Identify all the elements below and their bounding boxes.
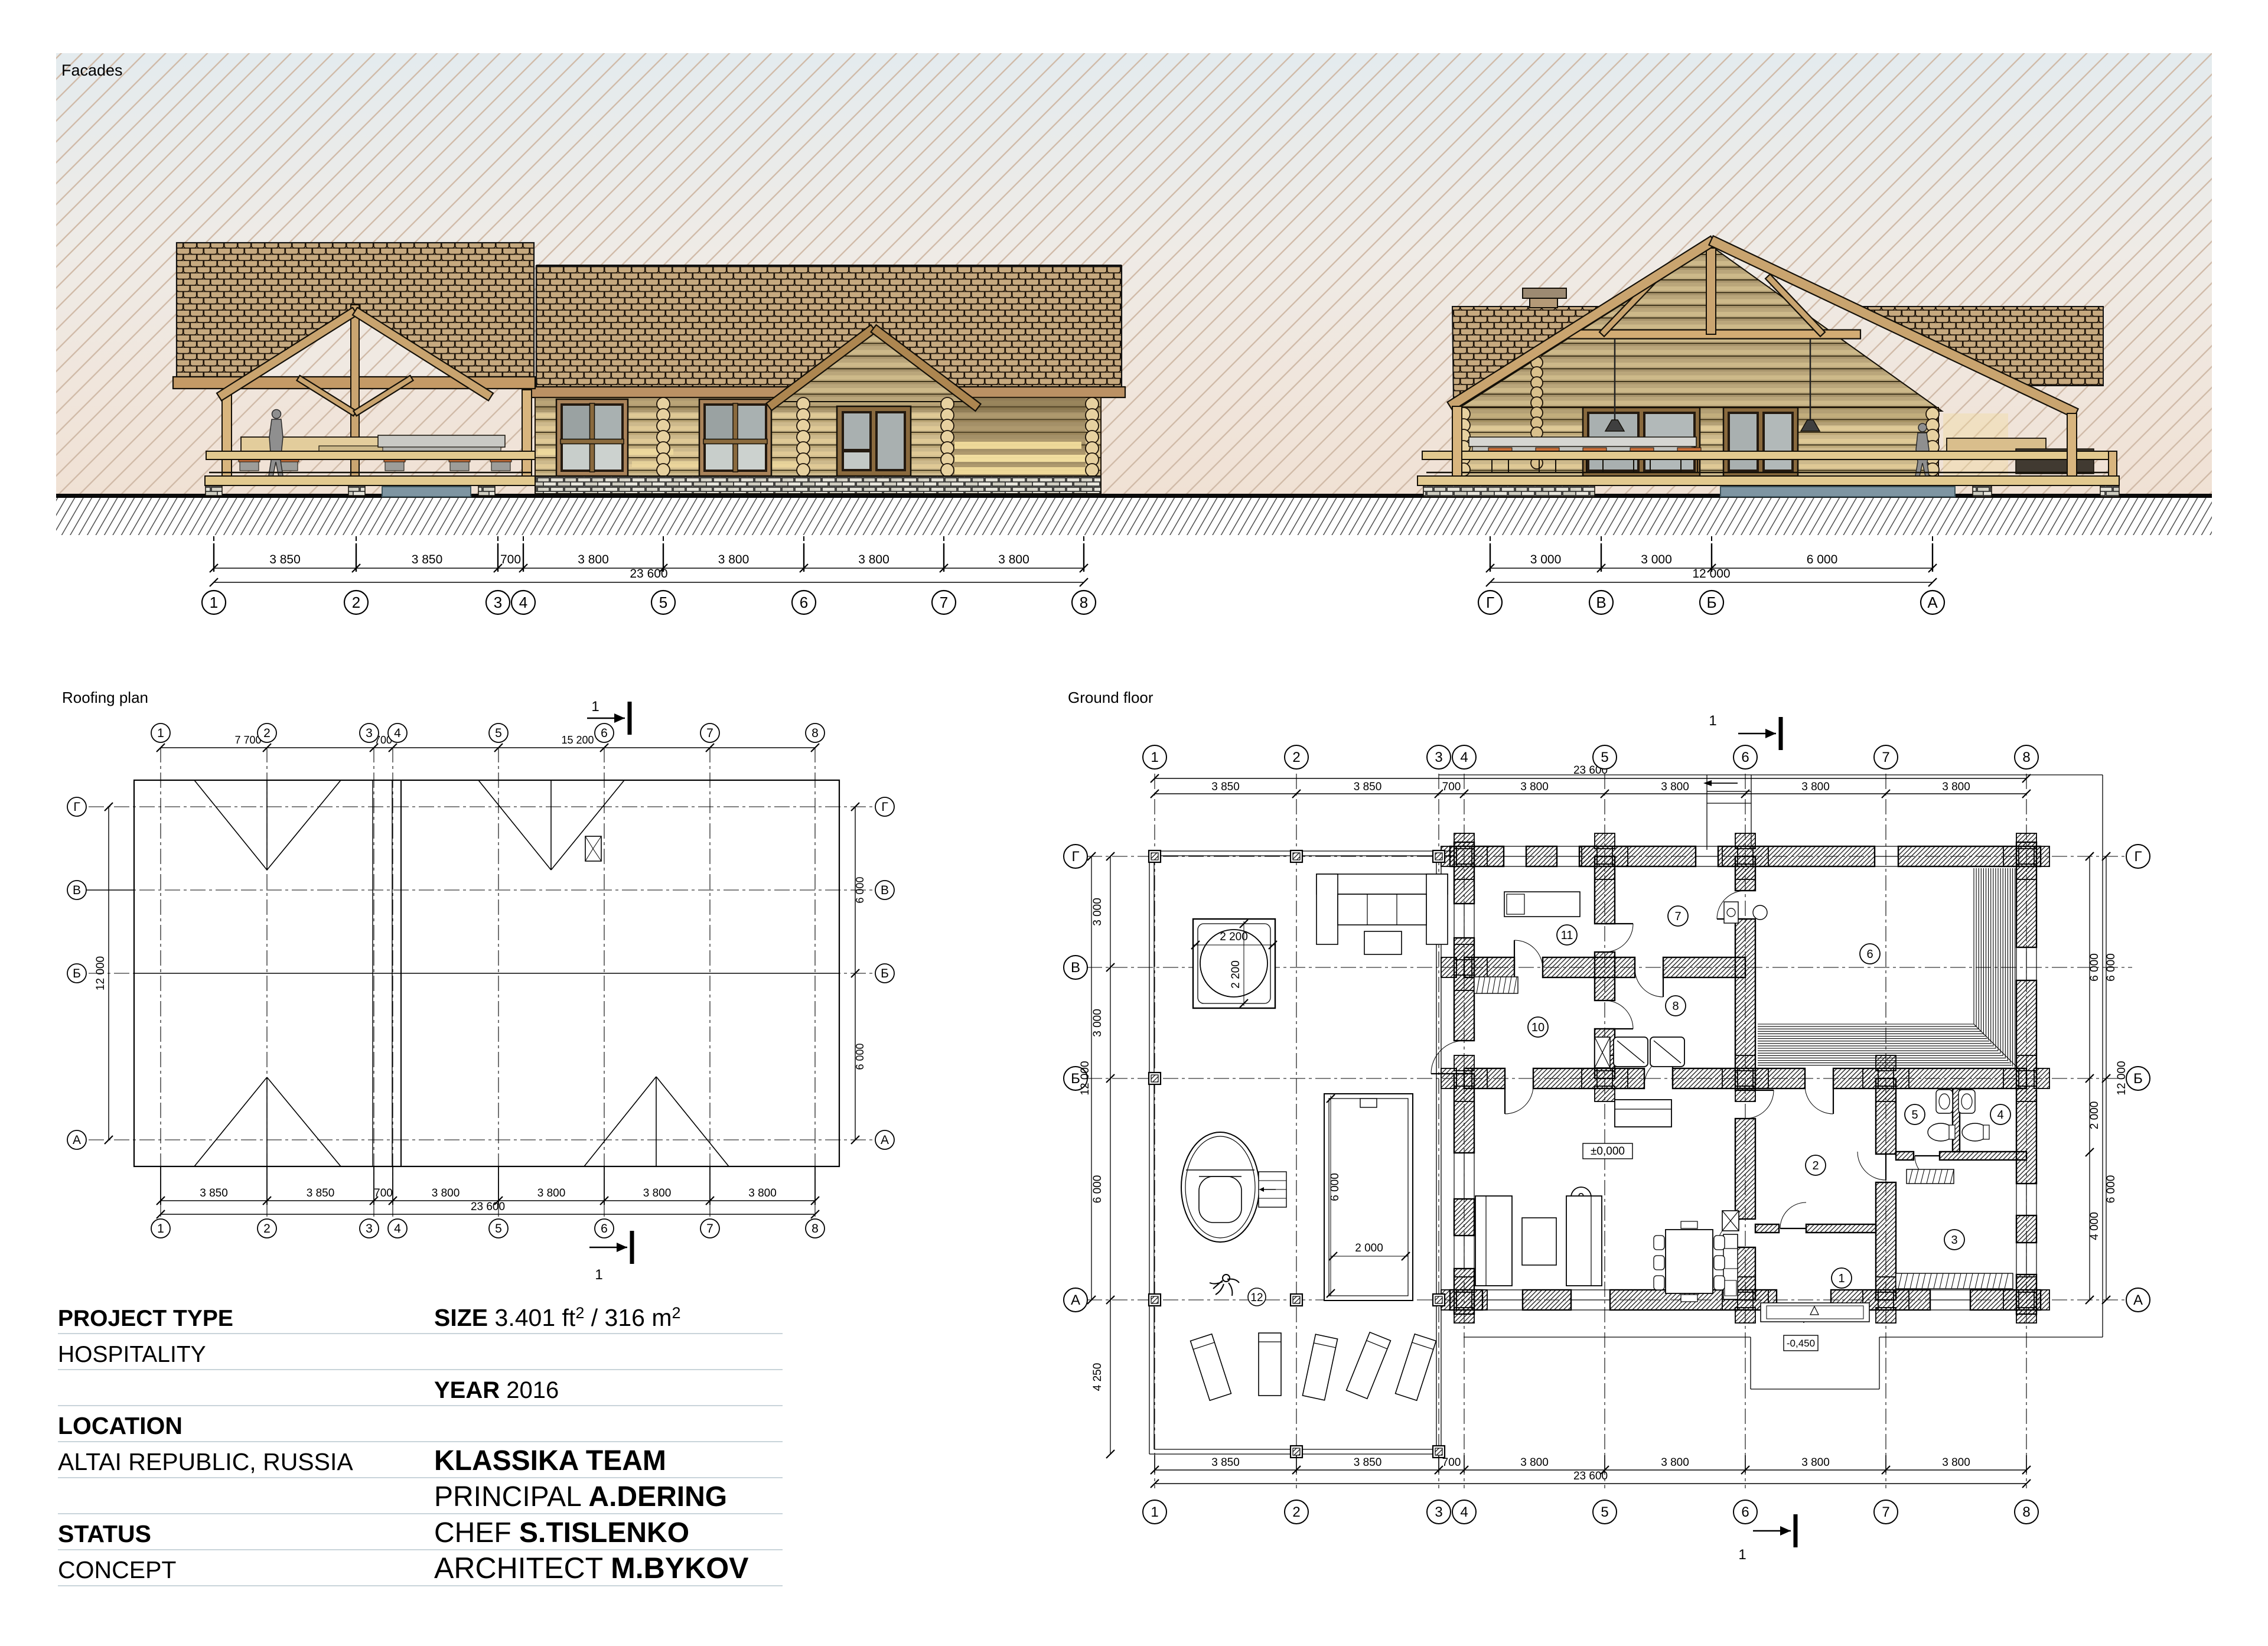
svg-text:LOCATION: LOCATION — [58, 1412, 183, 1439]
svg-text:3: 3 — [366, 726, 373, 740]
svg-text:11: 11 — [1561, 929, 1573, 942]
svg-text:15 200: 15 200 — [561, 734, 594, 746]
svg-text:3 000: 3 000 — [1091, 1009, 1104, 1037]
svg-text:2: 2 — [1292, 1504, 1300, 1520]
svg-text:2 000: 2 000 — [2088, 1101, 2101, 1130]
svg-text:Facades: Facades — [61, 61, 123, 79]
svg-text:7 700: 7 700 — [234, 734, 261, 746]
svg-text:5: 5 — [659, 594, 667, 611]
svg-text:3 800: 3 800 — [432, 1187, 460, 1200]
svg-text:PRINCIPAL A.DERING: PRINCIPAL A.DERING — [434, 1481, 727, 1513]
svg-text:3 000: 3 000 — [1091, 898, 1104, 926]
svg-text:-0,450: -0,450 — [1787, 1338, 1815, 1349]
svg-text:3 850: 3 850 — [412, 553, 443, 566]
svg-text:CHEF S.TISLENKO: CHEF S.TISLENKO — [434, 1517, 689, 1549]
svg-text:3 800: 3 800 — [748, 1187, 777, 1200]
svg-text:В: В — [1071, 960, 1080, 976]
svg-text:1: 1 — [1838, 1272, 1845, 1285]
svg-text:4: 4 — [519, 594, 527, 611]
svg-text:7: 7 — [706, 726, 713, 740]
svg-text:23 600: 23 600 — [1573, 1470, 1608, 1482]
svg-text:7: 7 — [1674, 910, 1681, 923]
svg-text:1: 1 — [1151, 1504, 1158, 1520]
svg-text:Г: Г — [881, 800, 888, 814]
svg-text:7: 7 — [940, 594, 948, 611]
svg-text:HOSPITALITY: HOSPITALITY — [58, 1342, 206, 1367]
svg-text:12 000: 12 000 — [1692, 567, 1730, 581]
svg-text:А: А — [73, 1133, 81, 1147]
svg-text:2: 2 — [263, 1222, 271, 1236]
svg-text:6: 6 — [1866, 948, 1873, 961]
svg-text:3 850: 3 850 — [307, 1187, 335, 1200]
svg-text:STATUS: STATUS — [58, 1520, 151, 1547]
svg-text:4 250: 4 250 — [1091, 1363, 1104, 1391]
svg-text:700: 700 — [374, 1187, 393, 1200]
svg-text:5: 5 — [1911, 1109, 1918, 1122]
svg-text:23 600: 23 600 — [471, 1201, 505, 1213]
svg-text:3 800: 3 800 — [858, 553, 889, 566]
svg-text:12 000: 12 000 — [94, 956, 107, 990]
svg-text:12 000: 12 000 — [1079, 1061, 1091, 1095]
svg-text:3 850: 3 850 — [1211, 781, 1240, 793]
svg-text:А: А — [881, 1133, 889, 1147]
svg-text:Roofing plan: Roofing plan — [62, 689, 148, 706]
svg-text:3 800: 3 800 — [1661, 781, 1689, 793]
svg-text:2 000: 2 000 — [1355, 1242, 1383, 1254]
svg-text:4: 4 — [1460, 1504, 1468, 1520]
svg-text:6: 6 — [601, 726, 608, 740]
svg-text:8: 8 — [812, 726, 819, 740]
svg-text:3: 3 — [494, 594, 502, 611]
svg-text:6 000: 6 000 — [2105, 1175, 2117, 1204]
svg-text:2 200: 2 200 — [1220, 931, 1248, 943]
svg-text:700: 700 — [1442, 781, 1461, 793]
svg-text:3 850: 3 850 — [1354, 781, 1382, 793]
svg-text:3 000: 3 000 — [1530, 553, 1562, 566]
svg-text:8: 8 — [812, 1222, 819, 1236]
svg-text:6: 6 — [800, 594, 808, 611]
svg-text:Б: Б — [881, 967, 889, 980]
svg-text:Г: Г — [1072, 849, 1080, 865]
svg-text:4: 4 — [394, 1222, 401, 1236]
svg-text:3 000: 3 000 — [1641, 553, 1672, 566]
svg-text:Б: Б — [2133, 1071, 2143, 1087]
svg-text:3 800: 3 800 — [998, 553, 1029, 566]
svg-text:7: 7 — [1882, 1504, 1889, 1520]
svg-text:В: В — [73, 884, 81, 897]
svg-text:Г: Г — [73, 800, 80, 814]
svg-text:8: 8 — [2022, 749, 2030, 765]
svg-text:6 000: 6 000 — [2088, 953, 2101, 982]
svg-text:6 000: 6 000 — [2105, 953, 2117, 982]
svg-text:7: 7 — [706, 1222, 713, 1236]
svg-text:1: 1 — [1738, 1547, 1746, 1563]
svg-text:6: 6 — [1741, 749, 1749, 765]
svg-text:3 800: 3 800 — [537, 1187, 566, 1200]
svg-text:В: В — [881, 884, 889, 897]
svg-text:ALTAI REPUBLIC, RUSSIA: ALTAI REPUBLIC, RUSSIA — [58, 1448, 353, 1475]
svg-text:5: 5 — [1601, 749, 1608, 765]
svg-text:Б: Б — [1706, 594, 1716, 611]
svg-text:4: 4 — [1460, 749, 1468, 765]
svg-text:SIZE 3.401 ft2 / 316 m2: SIZE 3.401 ft2 / 316 m2 — [434, 1304, 681, 1331]
svg-text:700: 700 — [1442, 1456, 1461, 1469]
svg-text:1: 1 — [157, 1222, 164, 1236]
svg-text:8: 8 — [2022, 1504, 2030, 1520]
svg-text:3 800: 3 800 — [578, 553, 609, 566]
svg-text:8: 8 — [1080, 594, 1088, 611]
svg-text:А: А — [1071, 1292, 1080, 1308]
svg-text:3 800: 3 800 — [1661, 1456, 1689, 1469]
svg-text:6 000: 6 000 — [854, 1043, 866, 1070]
svg-text:6: 6 — [1741, 1504, 1749, 1520]
svg-text:PROJECT TYPE: PROJECT TYPE — [58, 1306, 233, 1331]
svg-text:6: 6 — [601, 1222, 608, 1236]
svg-text:1: 1 — [1709, 713, 1716, 729]
svg-text:1: 1 — [595, 1267, 602, 1283]
svg-text:3 800: 3 800 — [1520, 781, 1549, 793]
svg-text:2: 2 — [352, 594, 360, 611]
svg-text:1: 1 — [591, 699, 599, 715]
svg-text:12: 12 — [1250, 1292, 1263, 1304]
svg-text:10: 10 — [1531, 1021, 1544, 1034]
svg-text:3: 3 — [366, 1222, 373, 1236]
svg-text:±0,000: ±0,000 — [1591, 1145, 1625, 1158]
svg-text:5: 5 — [495, 1222, 502, 1236]
svg-text:Г: Г — [1486, 594, 1494, 611]
svg-text:3: 3 — [1951, 1234, 1957, 1247]
svg-text:2 200: 2 200 — [1230, 960, 1242, 989]
svg-text:700: 700 — [500, 553, 521, 566]
svg-text:5: 5 — [495, 726, 502, 740]
svg-text:А: А — [2133, 1292, 2143, 1308]
svg-text:KLASSIKA TEAM: KLASSIKA TEAM — [434, 1445, 666, 1476]
svg-text:Ground floor: Ground floor — [1068, 689, 1153, 706]
svg-text:3 800: 3 800 — [643, 1187, 672, 1200]
svg-text:3 800: 3 800 — [1942, 781, 1970, 793]
svg-text:3 850: 3 850 — [269, 553, 301, 566]
svg-text:4 000: 4 000 — [2088, 1212, 2101, 1240]
svg-text:Г: Г — [2135, 849, 2142, 865]
svg-text:23 600: 23 600 — [630, 567, 667, 581]
svg-text:3 800: 3 800 — [1801, 781, 1830, 793]
svg-text:1: 1 — [210, 594, 218, 611]
svg-text:3 800: 3 800 — [1942, 1456, 1970, 1469]
svg-text:2: 2 — [1292, 749, 1300, 765]
svg-text:7: 7 — [1882, 749, 1889, 765]
svg-text:12 000: 12 000 — [2116, 1061, 2128, 1095]
svg-text:ARCHITECT M.BYKOV: ARCHITECT M.BYKOV — [434, 1552, 749, 1585]
svg-text:3 850: 3 850 — [200, 1187, 228, 1200]
svg-text:YEAR 2016: YEAR 2016 — [434, 1377, 559, 1403]
svg-text:В: В — [1596, 594, 1606, 611]
svg-text:6 000: 6 000 — [1091, 1175, 1104, 1204]
svg-text:3: 3 — [1435, 749, 1442, 765]
svg-text:2: 2 — [263, 726, 271, 740]
svg-text:1: 1 — [157, 726, 164, 740]
svg-text:3 800: 3 800 — [1801, 1456, 1830, 1469]
svg-text:6 000: 6 000 — [1329, 1173, 1341, 1201]
svg-text:5: 5 — [1601, 1504, 1608, 1520]
svg-text:2: 2 — [1812, 1159, 1819, 1172]
svg-text:3 850: 3 850 — [1354, 1456, 1382, 1469]
svg-text:6 000: 6 000 — [854, 876, 866, 903]
svg-text:А: А — [1927, 594, 1938, 611]
svg-text:6 000: 6 000 — [1807, 553, 1838, 566]
svg-text:3 800: 3 800 — [718, 553, 750, 566]
svg-text:3 850: 3 850 — [1211, 1456, 1240, 1469]
svg-text:1: 1 — [1151, 749, 1158, 765]
svg-text:4: 4 — [394, 726, 401, 740]
svg-text:4: 4 — [1997, 1109, 2003, 1122]
svg-text:3 800: 3 800 — [1520, 1456, 1549, 1469]
svg-text:CONCEPT: CONCEPT — [58, 1556, 176, 1583]
svg-text:Б: Б — [73, 967, 81, 980]
svg-text:8: 8 — [1672, 1000, 1679, 1013]
svg-text:3: 3 — [1435, 1504, 1442, 1520]
